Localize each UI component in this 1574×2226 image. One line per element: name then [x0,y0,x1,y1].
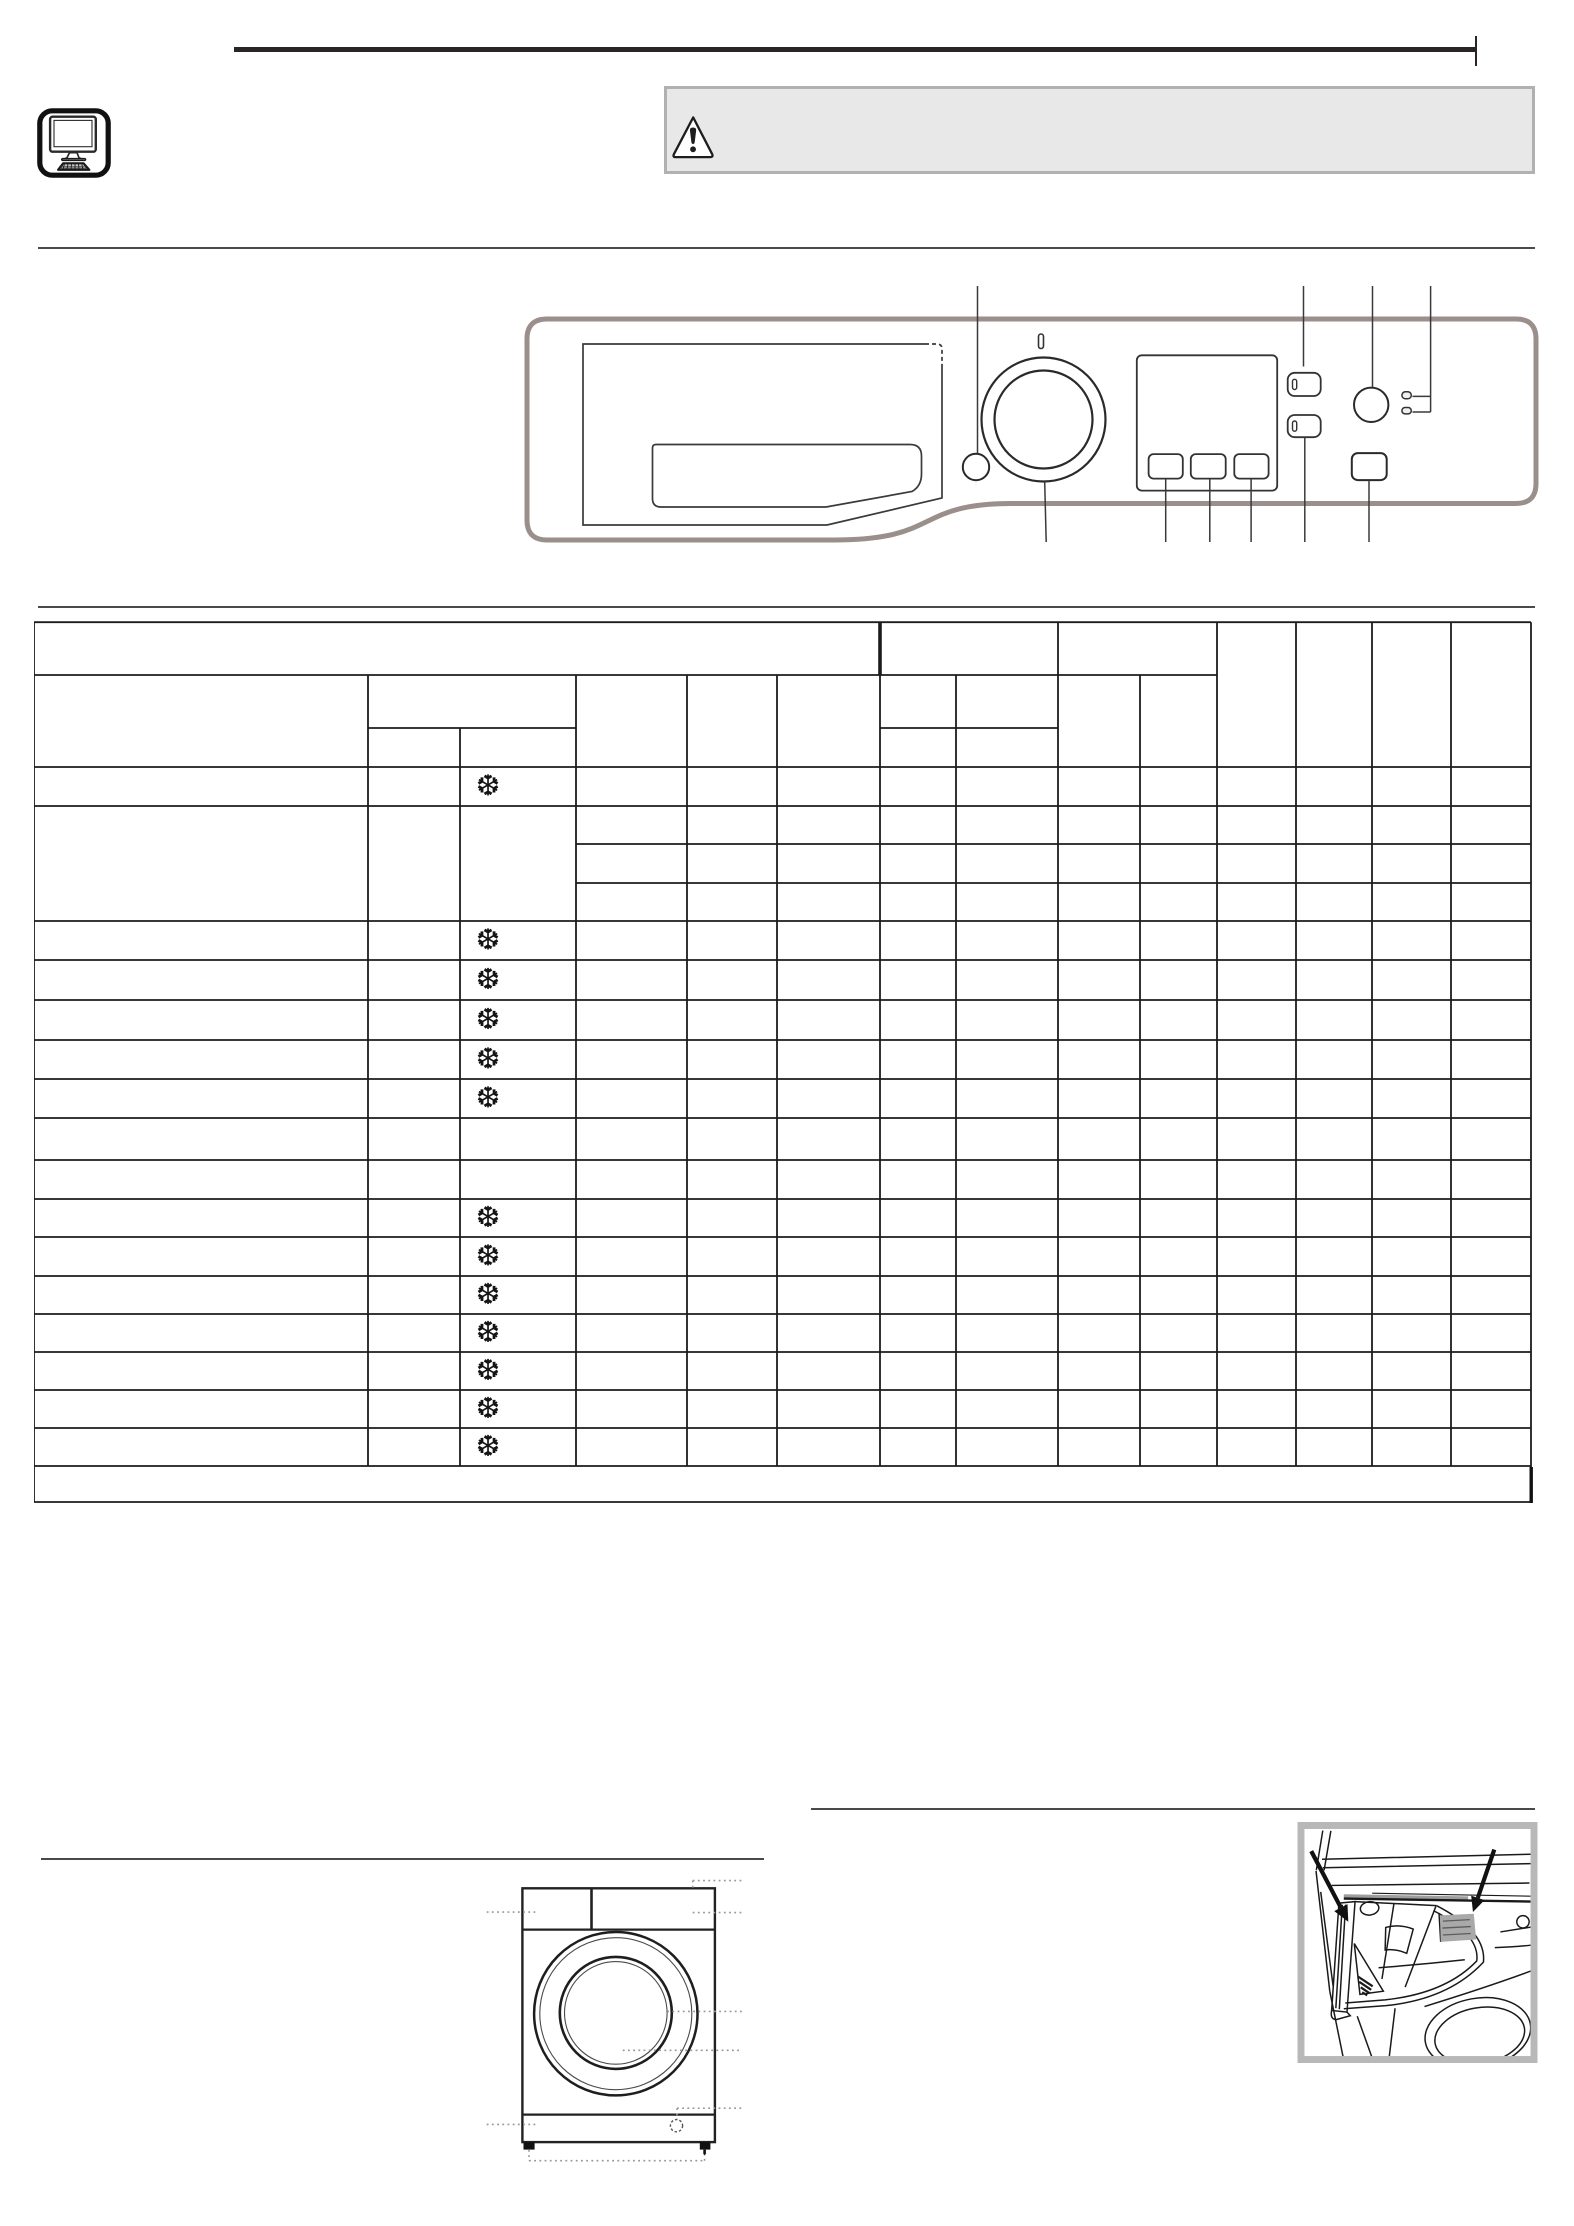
svg-text:❆: ❆ [476,1241,500,1273]
svg-text:❆: ❆ [476,1044,500,1076]
svg-text:❆: ❆ [476,1202,500,1234]
svg-text:❆: ❆ [476,964,500,996]
svg-text:❆: ❆ [476,1083,500,1115]
svg-text:❆: ❆ [476,1004,500,1036]
svg-text:❆: ❆ [476,771,500,803]
svg-text:❆: ❆ [476,1431,500,1463]
svg-text:❆: ❆ [476,1393,500,1425]
svg-text:❆: ❆ [476,925,500,957]
svg-text:❆: ❆ [476,1355,500,1387]
svg-text:❆: ❆ [476,1279,500,1311]
svg-text:❆: ❆ [476,1317,500,1349]
